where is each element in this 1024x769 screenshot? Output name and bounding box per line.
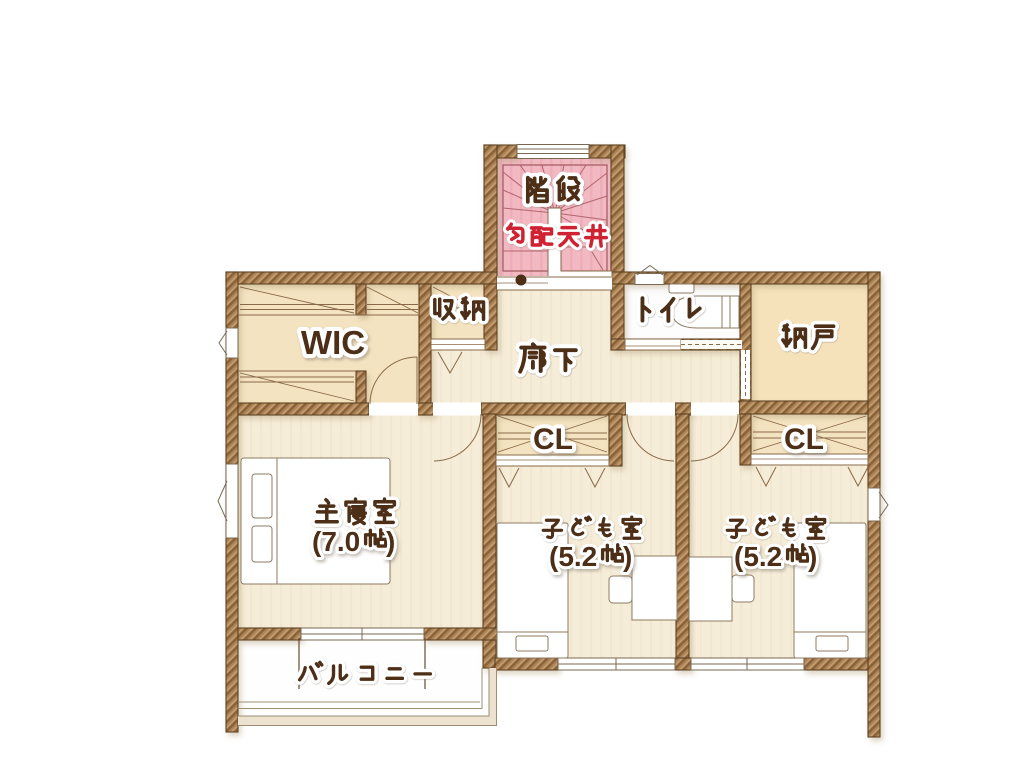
svg-text:(7.0: (7.0 xyxy=(312,526,360,557)
svg-text:(5.2: (5.2 xyxy=(549,541,597,572)
svg-text:CL: CL xyxy=(784,423,824,456)
svg-text:): ) xyxy=(623,541,632,572)
svg-text:WIC: WIC xyxy=(301,324,365,361)
svg-text:): ) xyxy=(386,526,395,557)
svg-text:): ) xyxy=(808,541,817,572)
svg-text:CL: CL xyxy=(533,423,573,456)
svg-text:(5.2: (5.2 xyxy=(734,541,782,572)
